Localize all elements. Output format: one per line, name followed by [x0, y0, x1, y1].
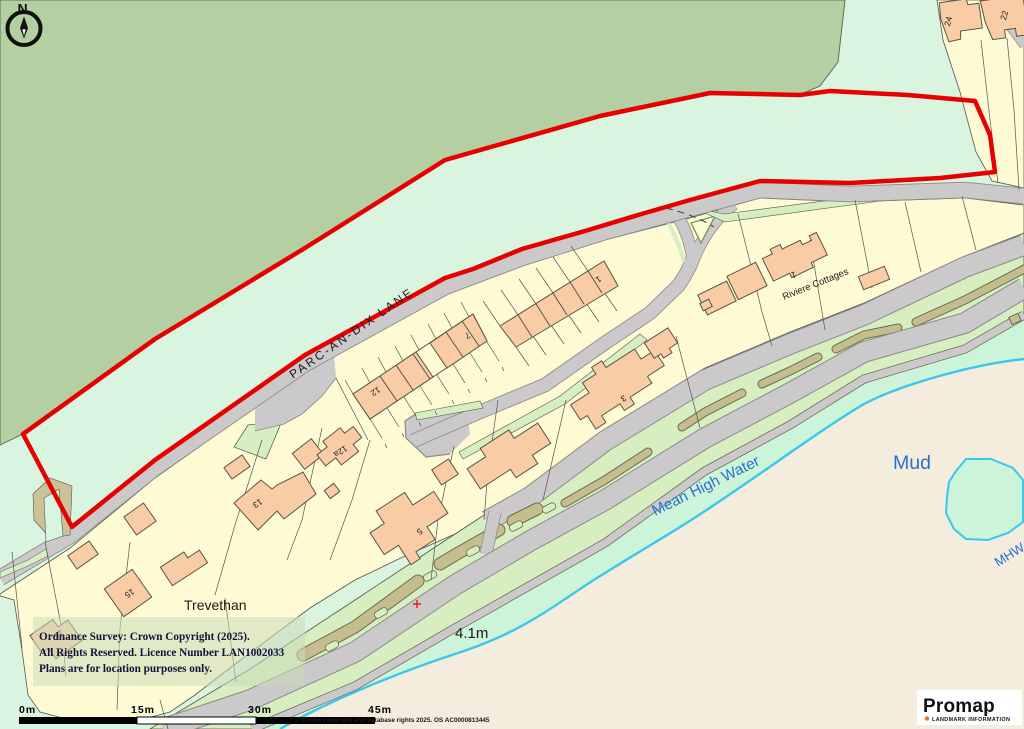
- svg-text:N: N: [18, 1, 28, 17]
- svg-text:0m: 0m: [19, 704, 36, 716]
- svg-text:Promap: Promap: [923, 696, 995, 717]
- svg-text:45m: 45m: [368, 704, 392, 716]
- svg-text:4.1m: 4.1m: [455, 625, 488, 642]
- svg-text:15m: 15m: [131, 704, 155, 716]
- svg-text:Plans are for location purpose: Plans are for location purposes only.: [39, 663, 212, 675]
- svg-text:LANDMARK INFORMATION: LANDMARK INFORMATION: [932, 717, 1010, 723]
- svg-text:Mud: Mud: [893, 452, 931, 474]
- svg-text:All Rights Reserved. Licence N: All Rights Reserved. Licence Number LAN1…: [39, 647, 285, 659]
- svg-text:30m: 30m: [248, 704, 272, 716]
- svg-text:Trevethan: Trevethan: [184, 597, 247, 613]
- svg-text:© Crown copyright and database: © Crown copyright and database rights 20…: [295, 716, 490, 724]
- svg-text:Ordnance Survey: Crown Copyrig: Ordnance Survey: Crown Copyright (2025).: [39, 631, 250, 643]
